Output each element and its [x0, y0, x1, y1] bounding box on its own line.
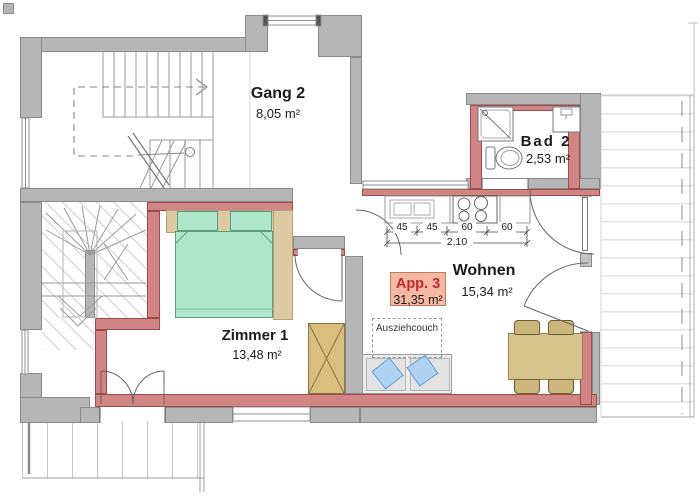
floor-plan: Gang 2 8,05 m² Bad 2 2,53 m² Zimmer 1 13… — [0, 0, 700, 500]
room-label-zimmer: Zimmer 1 — [210, 328, 300, 344]
terrace-boundary — [601, 23, 698, 417]
room-label-gang: Gang 2 — [238, 86, 318, 103]
room-area-zimmer: 13,48 m² — [222, 349, 292, 362]
dim-60-b: 60 — [498, 222, 516, 233]
room-area-wohnen: 15,34 m² — [452, 285, 522, 299]
balcony-boundary — [22, 421, 204, 492]
french-door-left-arc — [101, 371, 133, 404]
room-area-gang: 8,05 m² — [238, 107, 318, 121]
terrace-door-lower-arc — [524, 263, 588, 306]
room-area-bad: 2,53 m² — [520, 152, 576, 166]
toilet-icon — [486, 147, 522, 169]
gang2-stairs — [103, 52, 250, 188]
wardrobe-x-icon — [309, 324, 344, 393]
dim-45-a: 45 — [393, 222, 411, 233]
french-door-right-arc — [133, 371, 164, 404]
stove-icon — [453, 196, 497, 223]
dim-45-b: 45 — [423, 222, 441, 233]
winder-stairs — [42, 206, 146, 326]
dim-60-a: 60 — [458, 222, 476, 233]
apartment-badge: App. 3 31,35 m² — [390, 272, 446, 306]
room-label-bad: Bad 2 — [516, 134, 576, 150]
bath-sink-icon — [553, 107, 580, 132]
room-label-wohnen: Wohnen — [446, 263, 522, 280]
plan-linework — [0, 0, 700, 500]
stair-break-line — [128, 133, 169, 188]
couch-annotation: Ausziehcouch — [374, 324, 440, 335]
shower-icon — [478, 107, 513, 141]
apartment-badge-label: App. 3 — [391, 276, 445, 292]
zimmer-door-arc — [295, 254, 342, 301]
bed-details — [175, 231, 273, 309]
dim-total: 2,10 — [441, 237, 473, 248]
terrace-door-upper-arc — [530, 190, 594, 254]
apartment-badge-area: 31,35 m² — [391, 293, 445, 307]
